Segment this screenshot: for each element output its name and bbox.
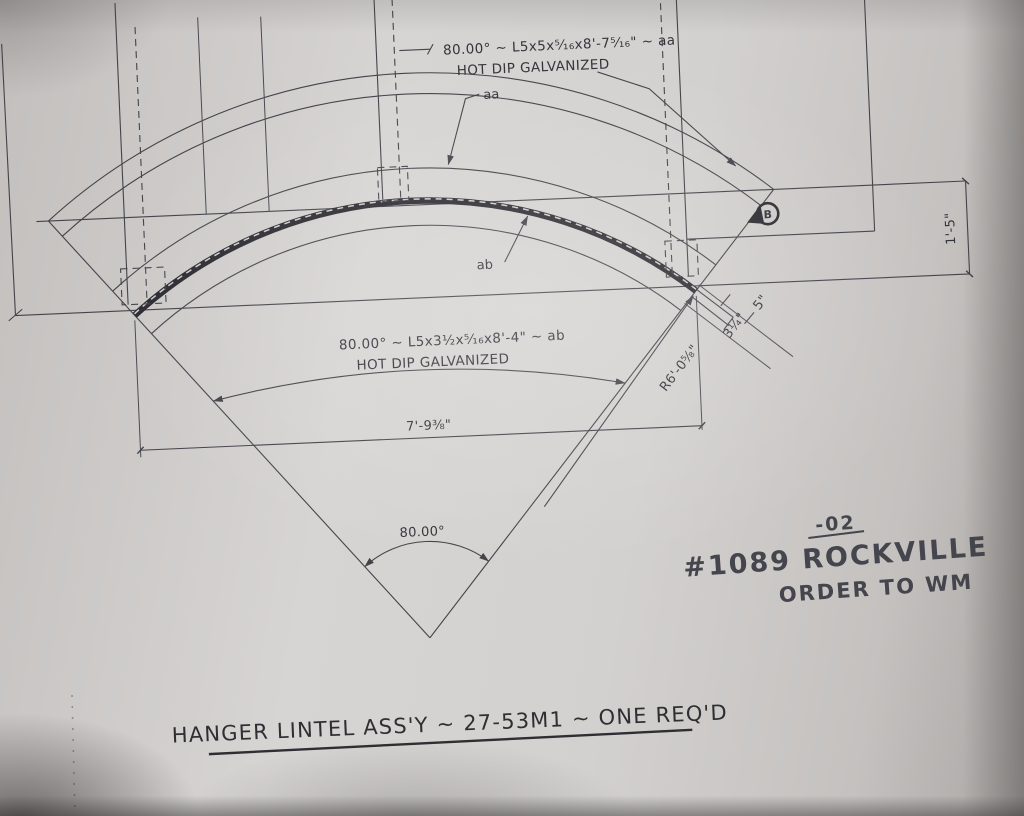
mark-aa-label: aa: [483, 87, 500, 103]
chord-ext-left: [135, 320, 141, 457]
mid-note-line2: HOT DIP GALVANIZED: [356, 351, 509, 374]
top-angle-arc: [108, 155, 716, 291]
top-note-line1: 80.00° ~ L5x5x⁵⁄₁₆x8'-7⁵⁄₁₆" ~ aa: [443, 33, 676, 59]
chord-dim-label: 7'-9⅜": [406, 418, 452, 435]
top-level-line: [36, 181, 965, 222]
extension-dim-tick-1: [720, 294, 730, 305]
section-marker-letter: B: [763, 208, 772, 221]
section-marker: B: [746, 203, 778, 225]
hanger-rod-2: [374, 0, 383, 199]
mark-ab-leader: [503, 216, 530, 262]
mark-ab-label: ab: [476, 258, 493, 274]
outer-arc-2: [57, 79, 762, 237]
handwriting-line2: ORDER TO WM: [778, 570, 974, 608]
structure-line-vertical: [863, 0, 874, 231]
top-note-leader: [597, 66, 735, 172]
hanger-rod-1-hidden: [135, 27, 147, 304]
top-note-dash: [399, 49, 430, 50]
mid-note-line1: 80.00° ~ L5x3½x⁵⁄₁₆x8'-4" ~ ab: [339, 328, 566, 354]
mark-aa-leader: [445, 94, 482, 164]
support-line-2: [261, 17, 270, 212]
lintel-drawing: 3¼" 5" R6'-0⅝" 7'-9⅜" 1'-5" 80.00° 80.00…: [0, 0, 1024, 816]
structure-line-horizontal: [687, 231, 875, 239]
support-line-1: [198, 17, 207, 214]
lintel-heavy-arc: [130, 189, 696, 316]
angle-dim-arc: [364, 539, 489, 567]
top-note-line2: HOT DIP GALVANIZED: [456, 56, 609, 79]
extension-dim-small-label: 3¼": [721, 310, 750, 341]
hanger-rod-3: [675, 0, 688, 276]
radius-dim-label: R6'-0⅝": [657, 342, 702, 394]
handwriting: -02 #1089 ROCKVILLE ORDER TO WM: [680, 503, 991, 614]
height-dim-line: [966, 181, 970, 274]
blueprint-photo: 3¼" 5" R6'-0⅝" 7'-9⅜" 1'-5" 80.00° 80.00…: [0, 0, 1024, 816]
title-block: HANGER LINTEL ASS'Y ~ 27-53M1 ~ ONE REQ'…: [171, 700, 728, 755]
lintel-arc-serration: [130, 187, 696, 314]
angle-dim-label: 80.00°: [399, 524, 445, 541]
extension-dim-large-label: 5": [750, 292, 771, 313]
left-guide-line: [2, 44, 16, 316]
height-dim-label: 1'-5": [943, 212, 959, 245]
paper-crease: [72, 695, 75, 816]
drawing-title: HANGER LINTEL ASS'Y ~ 27-53M1 ~ ONE REQ'…: [171, 700, 728, 747]
hanger-rod-1: [115, 3, 128, 305]
